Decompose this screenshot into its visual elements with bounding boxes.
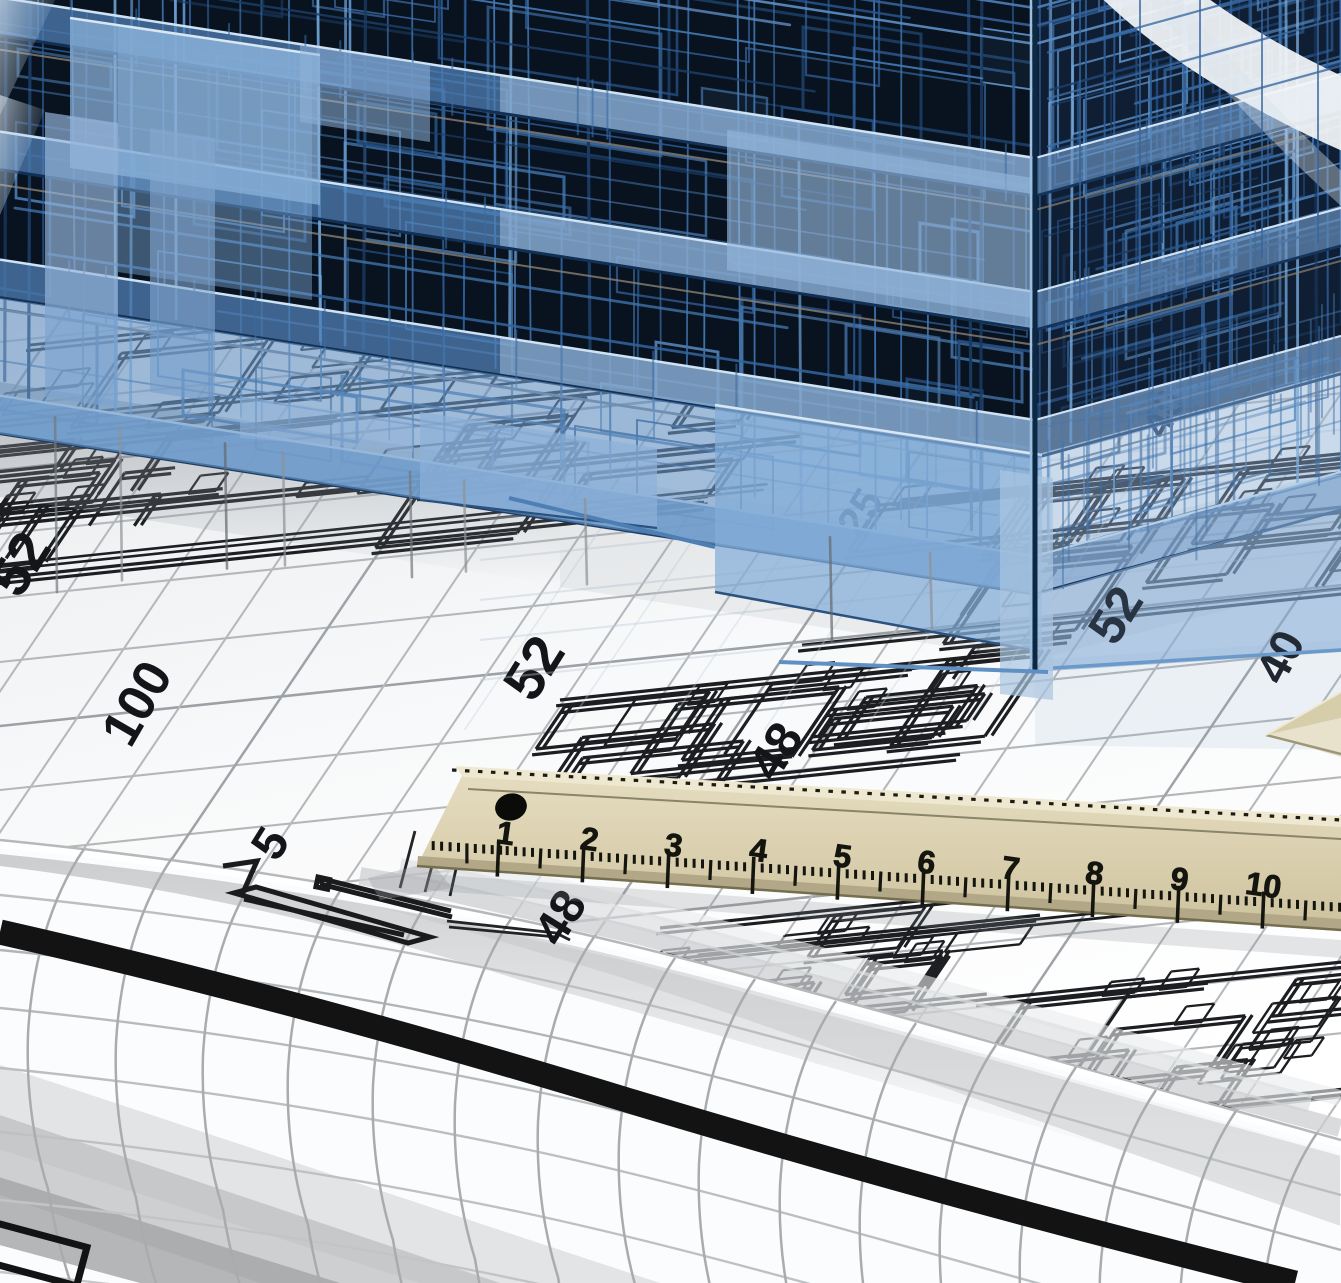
svg-text:10: 10 bbox=[1243, 865, 1283, 906]
